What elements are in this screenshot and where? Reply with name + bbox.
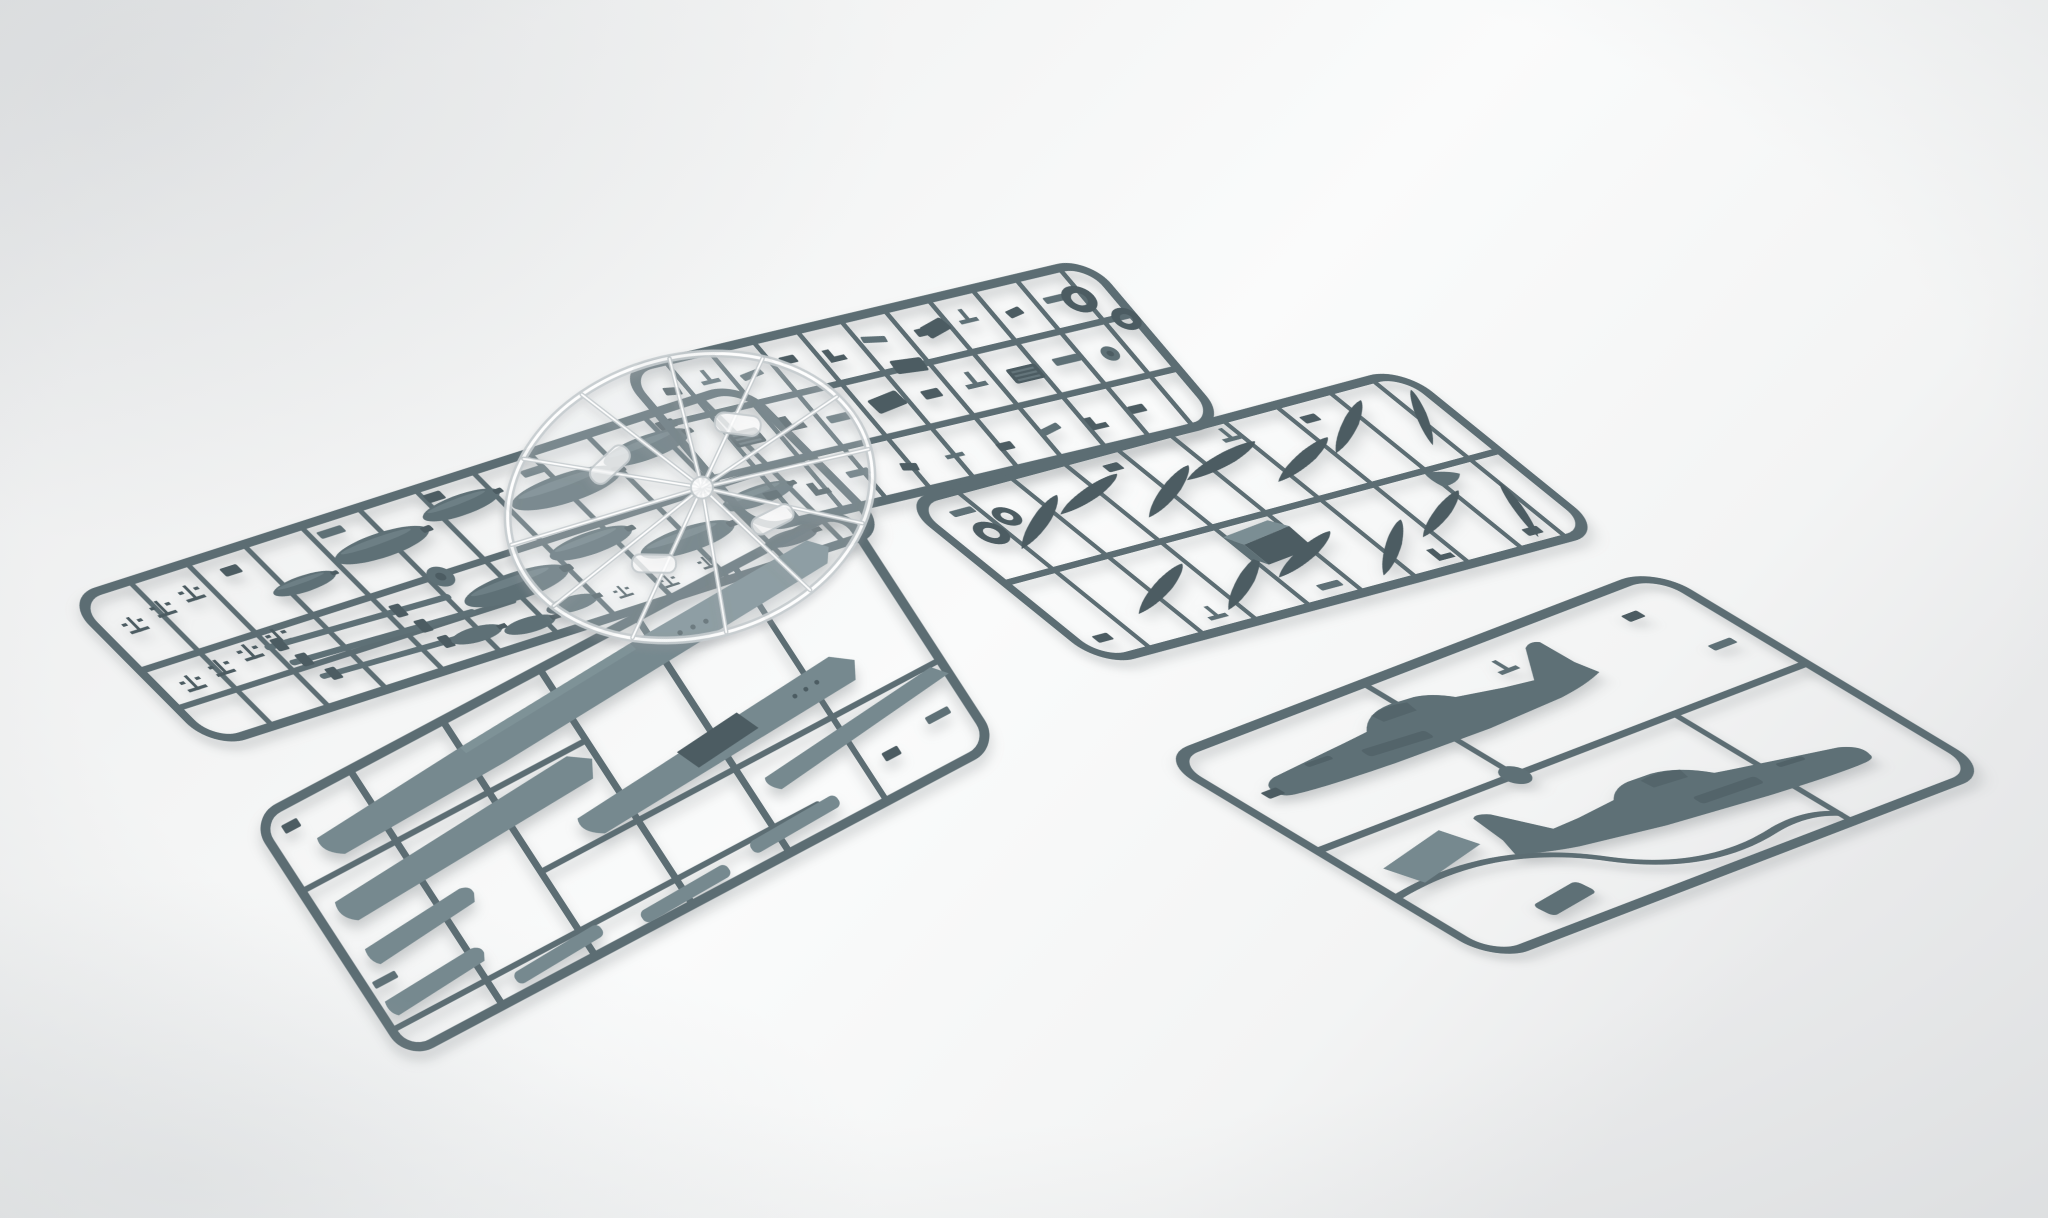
photo-stage (0, 0, 2048, 1218)
photo-vignette (0, 0, 2048, 1218)
sprue-photo (0, 0, 2048, 1218)
